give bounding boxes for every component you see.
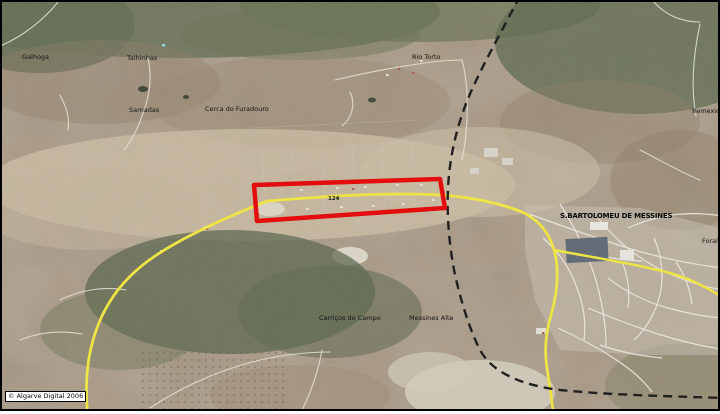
label-carricos: Carriços do Campo	[319, 314, 381, 322]
photo-grain-overlay	[2, 2, 718, 409]
copyright-credit: © Algarve Digital 2006	[5, 391, 86, 402]
label-talhinhas: Talhinhas	[126, 54, 158, 62]
label-road-number-124: 124	[328, 196, 340, 202]
label-town-sao-bartolomeu-de-messines: S.BARTOLOMEU DE MESSINES	[560, 212, 672, 220]
aerial-map-canvas[interactable]: Galhoga Talhinhas Sarnadas Cerca do Fura…	[0, 0, 720, 411]
label-remexido: Remexido	[692, 107, 718, 115]
label-messines-alte: Messines Alte	[409, 314, 454, 322]
label-sarnadas: Sarnadas	[129, 106, 160, 114]
label-rio-torto: Rio Torto	[412, 53, 440, 61]
label-foral: Foral	[702, 237, 718, 245]
aerial-photo: Galhoga Talhinhas Sarnadas Cerca do Fura…	[2, 2, 718, 409]
map-page: Galhoga Talhinhas Sarnadas Cerca do Fura…	[0, 0, 720, 414]
label-galhoga: Galhoga	[22, 53, 49, 61]
label-cerca: Cerca do Furadouro	[205, 105, 269, 113]
